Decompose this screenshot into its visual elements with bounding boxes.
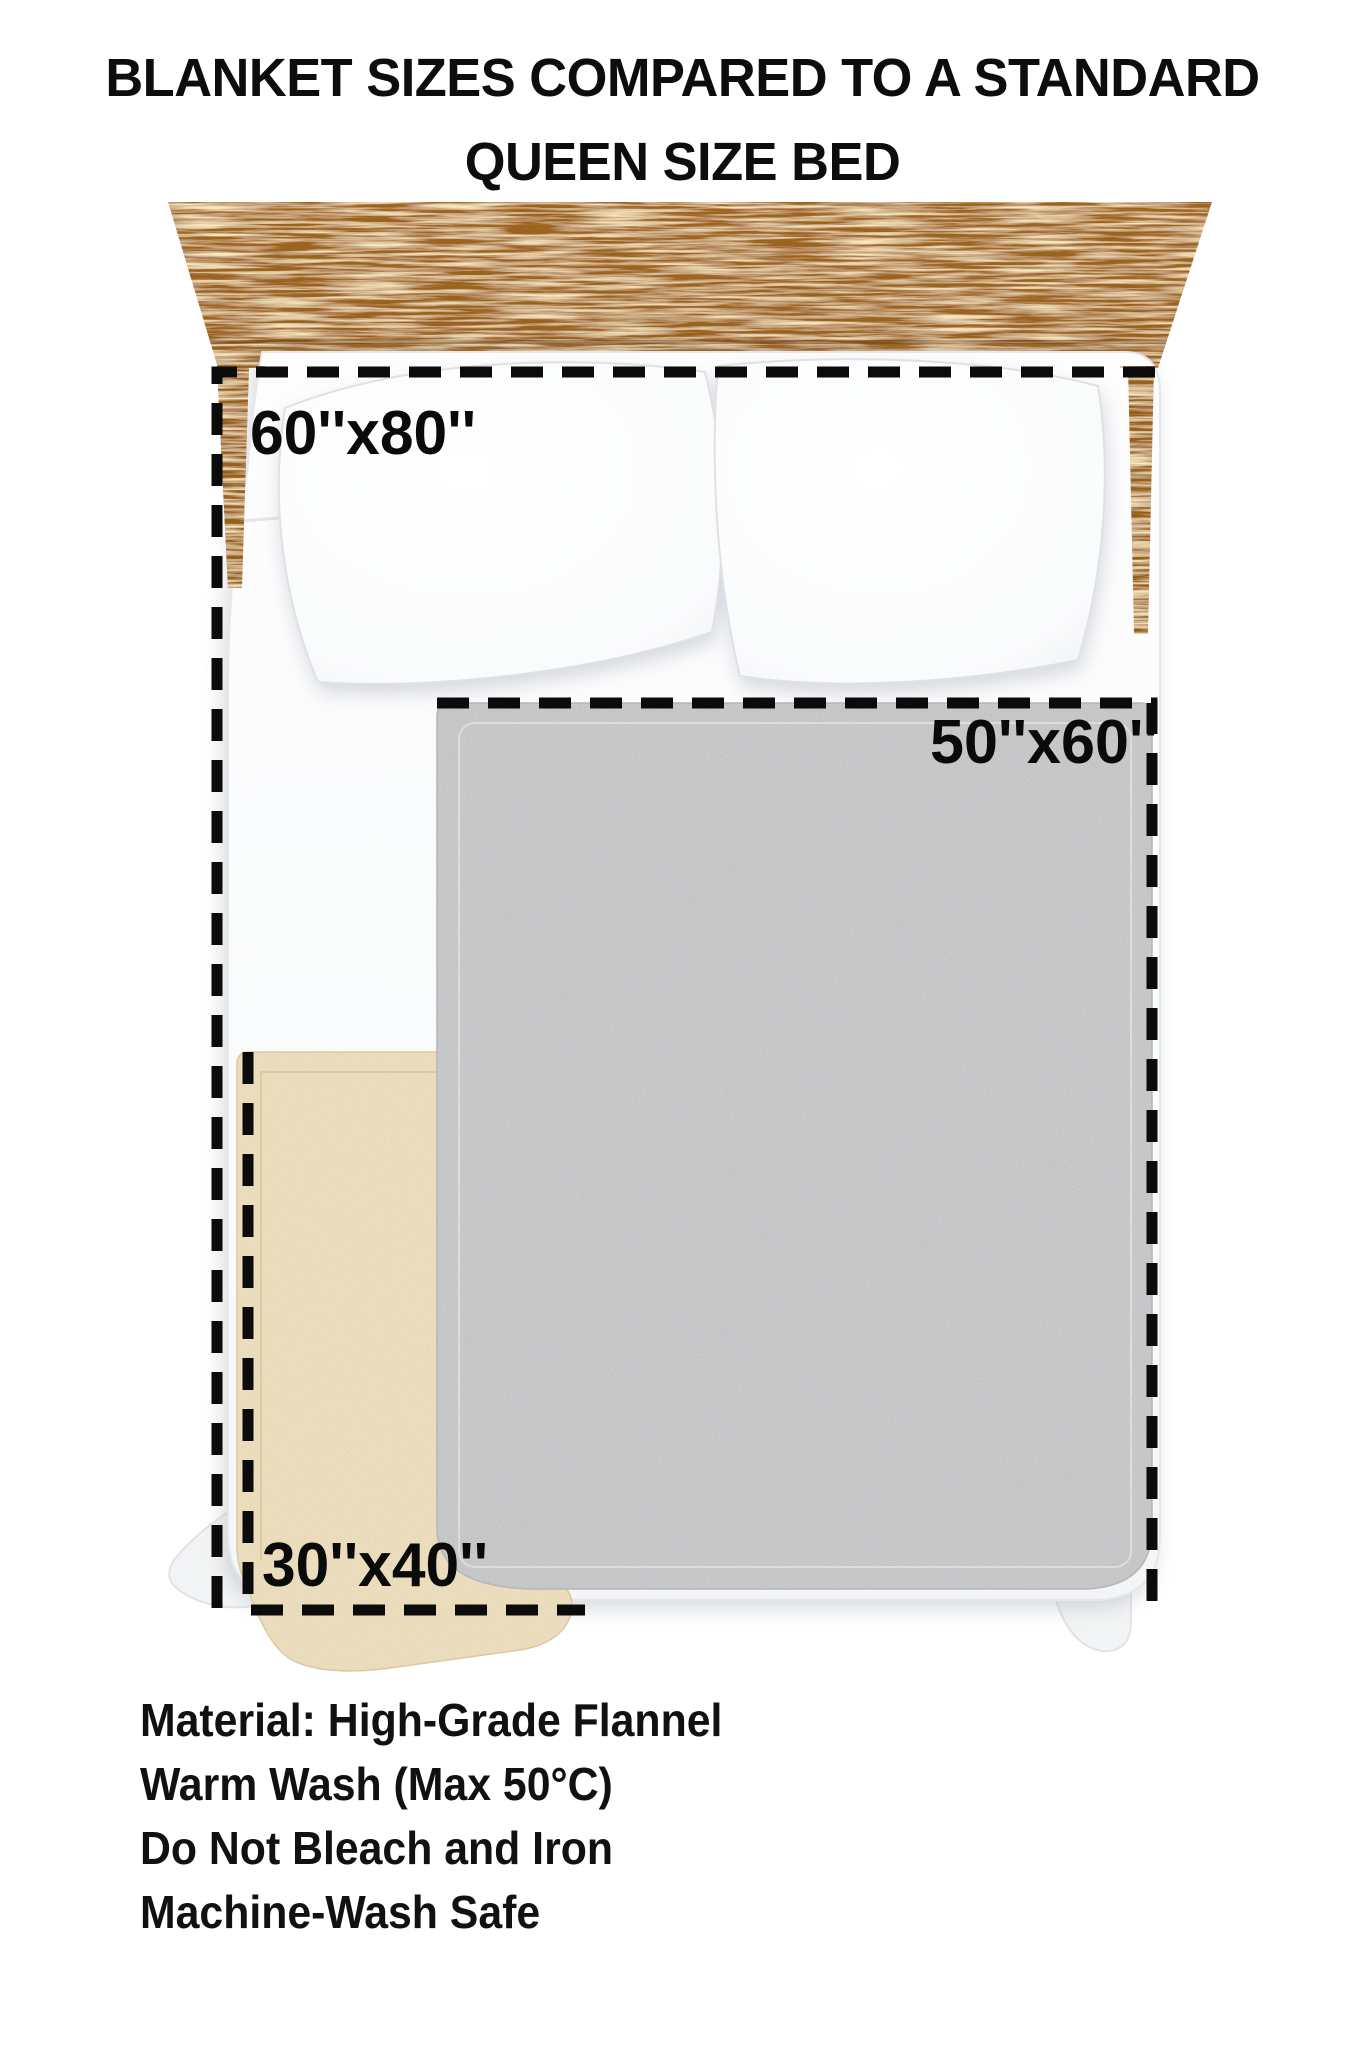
size-label-30x40: 30''x40'' [262,1531,488,1600]
size-label-60x80: 60''x80'' [250,399,476,468]
headboard-seam [160,340,1222,344]
care-line-bleach: Do Not Bleach and Iron [140,1816,722,1880]
infographic-page: BLANKET SIZES COMPARED TO A STANDARD QUE… [0,0,1365,2048]
care-line-machine: Machine-Wash Safe [140,1880,722,1944]
care-instructions: Material: High-Grade Flannel Warm Wash (… [140,1688,722,1944]
care-line-wash: Warm Wash (Max 50°C) [140,1752,722,1816]
size-label-50x60: 50''x60'' [930,708,1158,777]
care-line-material: Material: High-Grade Flannel [140,1688,722,1752]
blanket-50x60-fabric [437,703,1152,1589]
blanket-50x60 [437,703,1152,1589]
pillow-right [715,359,1105,683]
